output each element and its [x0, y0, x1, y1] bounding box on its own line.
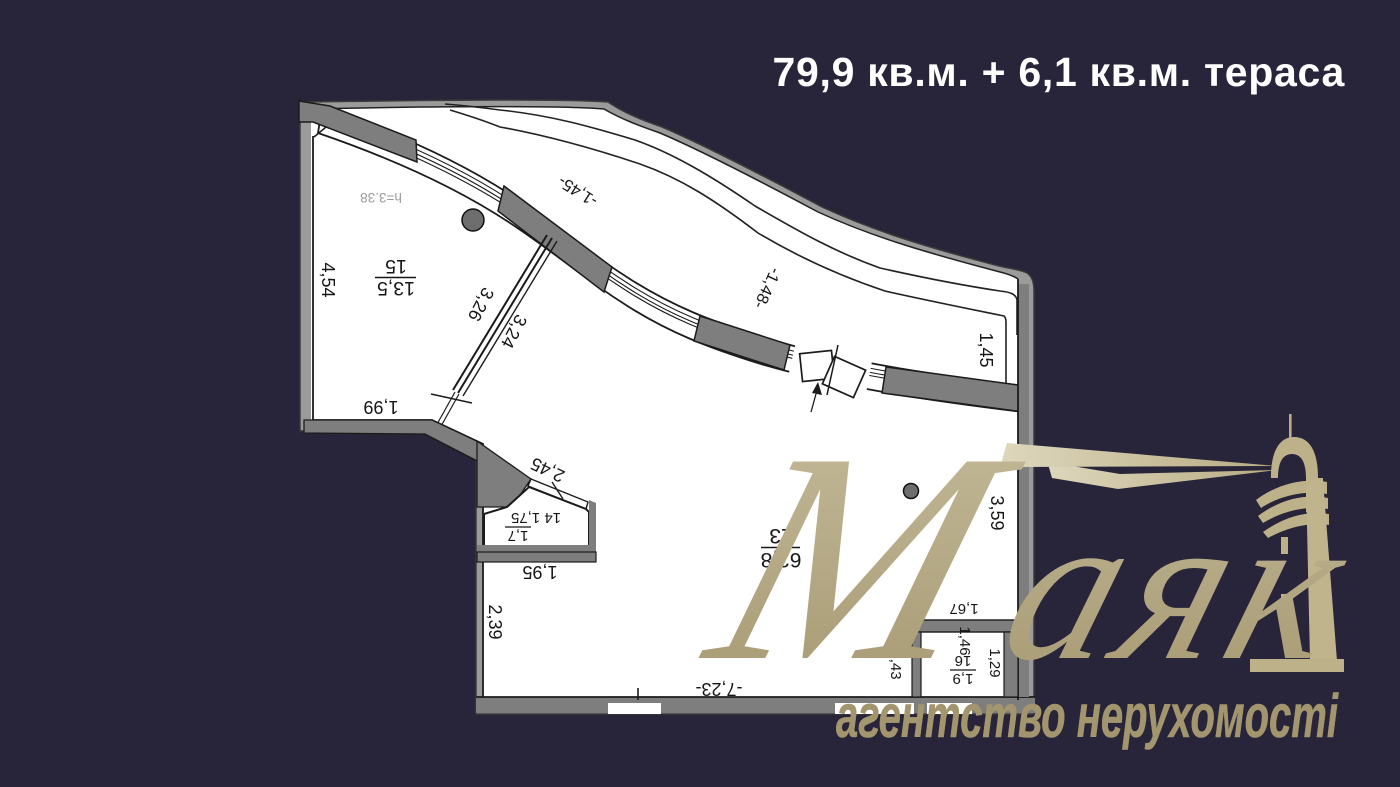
svg-text:16: 16: [955, 652, 972, 669]
svg-text:агентство нерухомості: агентство нерухомості: [836, 682, 1339, 750]
svg-text:h=3.38: h=3.38: [360, 190, 402, 205]
svg-text:1,95: 1,95: [522, 562, 557, 582]
svg-text:1,45: 1,45: [976, 332, 996, 367]
svg-text:1,99: 1,99: [363, 397, 398, 417]
svg-text:2,39: 2,39: [485, 604, 505, 639]
svg-text:1,7: 1,7: [508, 527, 529, 544]
svg-text:15: 15: [385, 255, 407, 277]
svg-text:4,54: 4,54: [318, 262, 338, 297]
svg-text:13,5: 13,5: [377, 277, 415, 299]
svg-text:14 1,75: 14 1,75: [511, 509, 561, 526]
